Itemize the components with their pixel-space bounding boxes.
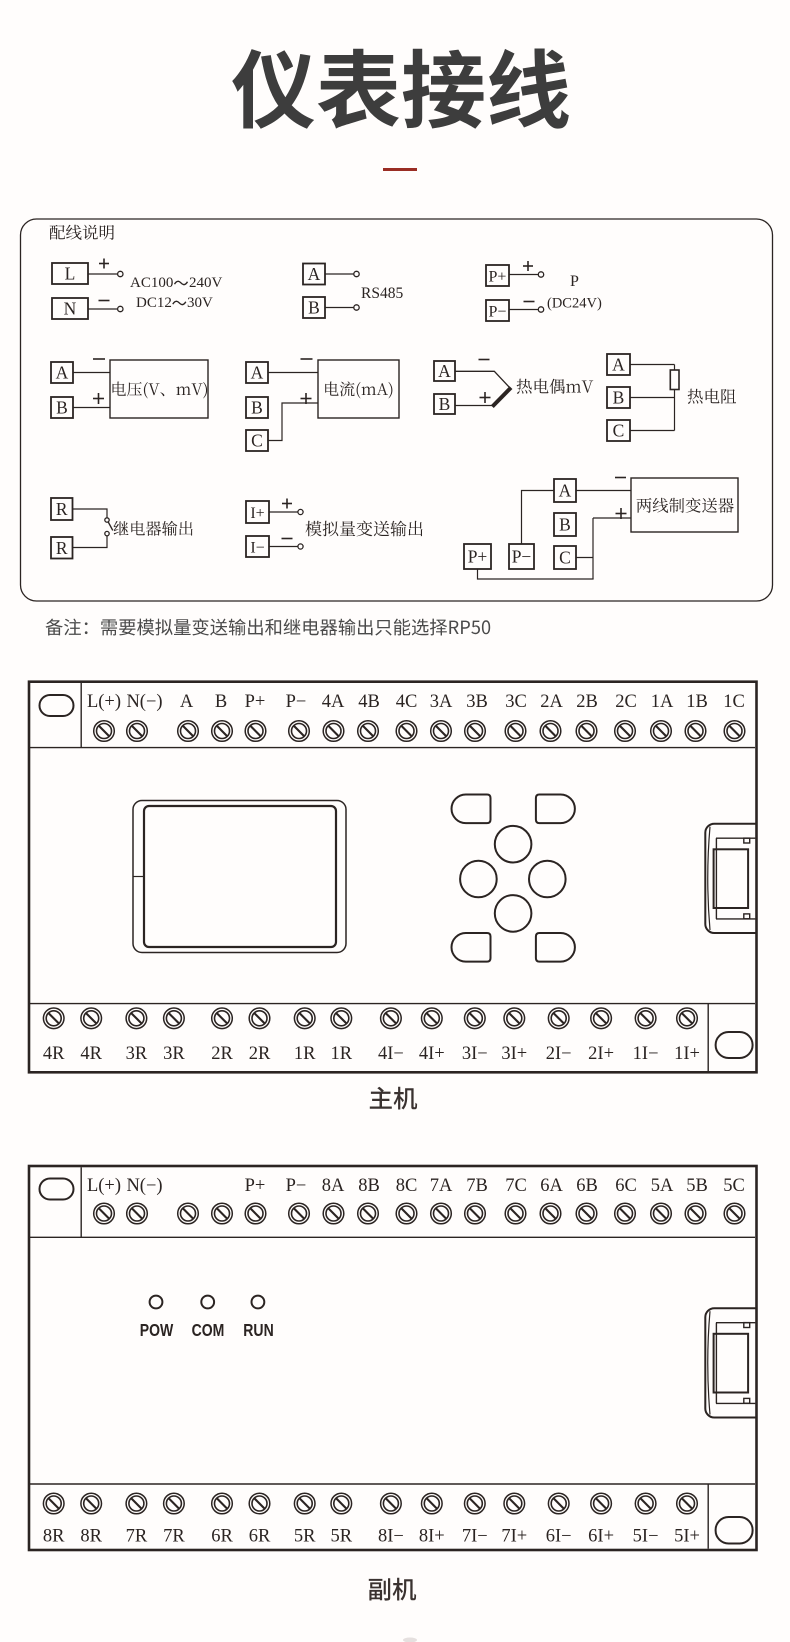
svg-text:1I−: 1I− — [633, 1044, 659, 1064]
svg-text:4R: 4R — [80, 1044, 102, 1064]
svg-text:1C: 1C — [723, 692, 745, 712]
svg-text:8A: 8A — [322, 1176, 345, 1196]
svg-text:30V: 30V — [187, 295, 213, 311]
svg-text:3I−: 3I− — [462, 1044, 488, 1064]
svg-text:P: P — [570, 273, 579, 290]
svg-text:4A: 4A — [322, 692, 345, 712]
svg-text:R: R — [56, 499, 68, 519]
svg-text:3B: 3B — [466, 692, 488, 712]
svg-text:A: A — [180, 692, 194, 712]
svg-text:6I+: 6I+ — [588, 1527, 614, 1547]
svg-text:1R: 1R — [331, 1044, 353, 1064]
svg-text:3R: 3R — [163, 1044, 185, 1064]
svg-text:A: A — [56, 363, 69, 383]
svg-text:4R: 4R — [43, 1044, 65, 1064]
svg-text:B: B — [559, 515, 571, 535]
svg-text:N: N — [64, 299, 77, 319]
svg-text:DC12: DC12 — [136, 295, 172, 311]
svg-text:5I−: 5I− — [633, 1527, 659, 1547]
svg-text:6R: 6R — [211, 1527, 233, 1547]
svg-text:1R: 1R — [294, 1044, 316, 1064]
svg-text:A: A — [559, 481, 572, 501]
svg-text:6C: 6C — [615, 1176, 637, 1196]
svg-text:P+: P+ — [245, 692, 266, 712]
svg-text:8R: 8R — [43, 1527, 65, 1547]
svg-text:2I−: 2I− — [546, 1044, 572, 1064]
svg-text:L(+): L(+) — [87, 1176, 121, 1196]
svg-text:A: A — [438, 361, 451, 381]
svg-text:P+: P+ — [468, 547, 488, 567]
svg-text:5R: 5R — [294, 1527, 316, 1547]
svg-text:2R: 2R — [249, 1044, 271, 1064]
svg-text:B: B — [251, 398, 263, 418]
svg-text:240V: 240V — [189, 275, 223, 291]
svg-text:B: B — [215, 692, 227, 712]
svg-text:RS485: RS485 — [361, 285, 403, 302]
svg-text:7A: 7A — [430, 1176, 453, 1196]
svg-text:7R: 7R — [126, 1527, 148, 1547]
svg-text:POW: POW — [140, 1320, 174, 1340]
svg-text:C: C — [251, 431, 263, 451]
svg-text:P+: P+ — [245, 1176, 266, 1196]
svg-text:6B: 6B — [576, 1176, 598, 1196]
svg-text:L: L — [65, 264, 76, 284]
svg-text:3C: 3C — [505, 692, 527, 712]
svg-text:A: A — [612, 355, 625, 375]
svg-text:RUN: RUN — [243, 1320, 273, 1340]
svg-text:5C: 5C — [723, 1176, 745, 1196]
svg-text:A: A — [251, 363, 264, 383]
svg-text:P−: P− — [489, 304, 507, 321]
svg-text:COM: COM — [192, 1320, 225, 1340]
svg-text:B: B — [439, 394, 451, 414]
svg-text:7B: 7B — [466, 1176, 488, 1196]
svg-text:4I−: 4I− — [378, 1044, 404, 1064]
svg-text:1A: 1A — [651, 692, 674, 712]
svg-text:3A: 3A — [430, 692, 453, 712]
svg-text:I+: I+ — [250, 505, 264, 522]
svg-text:8R: 8R — [80, 1527, 102, 1547]
svg-text:2C: 2C — [615, 692, 637, 712]
svg-text:7R: 7R — [163, 1527, 185, 1547]
svg-text:5A: 5A — [651, 1176, 674, 1196]
svg-text:7I+: 7I+ — [501, 1527, 527, 1547]
svg-text:B: B — [56, 398, 68, 418]
svg-text:6I−: 6I− — [546, 1527, 572, 1547]
svg-text:2I+: 2I+ — [588, 1044, 614, 1064]
svg-text:5I+: 5I+ — [674, 1527, 700, 1547]
svg-text:3I+: 3I+ — [501, 1044, 527, 1064]
svg-text:R: R — [56, 538, 68, 558]
svg-text:(DC24V): (DC24V) — [547, 296, 602, 312]
svg-text:2A: 2A — [540, 692, 563, 712]
svg-text:B: B — [308, 298, 320, 318]
svg-text:P−: P− — [512, 547, 532, 567]
svg-text:C: C — [559, 548, 571, 568]
svg-text:I−: I− — [250, 540, 264, 557]
svg-text:7I−: 7I− — [462, 1527, 488, 1547]
svg-text:2R: 2R — [211, 1044, 233, 1064]
svg-text:C: C — [613, 421, 625, 441]
svg-text:5B: 5B — [686, 1176, 708, 1196]
svg-text:P−: P− — [286, 1176, 307, 1196]
svg-text:3R: 3R — [126, 1044, 148, 1064]
svg-text:N(−): N(−) — [126, 1176, 162, 1196]
svg-text:B: B — [613, 388, 625, 408]
svg-text:8B: 8B — [358, 1176, 380, 1196]
svg-text:4B: 4B — [358, 692, 380, 712]
svg-text:1I+: 1I+ — [674, 1044, 700, 1064]
svg-text:AC100: AC100 — [130, 275, 173, 291]
svg-text:5R: 5R — [331, 1527, 353, 1547]
svg-text:8I−: 8I− — [378, 1527, 404, 1547]
svg-text:A: A — [308, 264, 321, 284]
svg-text:P+: P+ — [489, 269, 507, 286]
svg-text:N(−): N(−) — [126, 692, 162, 712]
svg-text:4I+: 4I+ — [419, 1044, 445, 1064]
svg-text:6A: 6A — [540, 1176, 563, 1196]
svg-text:L(+): L(+) — [87, 692, 121, 712]
svg-text:4C: 4C — [396, 692, 418, 712]
svg-text:2B: 2B — [576, 692, 598, 712]
svg-text:7C: 7C — [505, 1176, 527, 1196]
svg-text:6R: 6R — [249, 1527, 271, 1547]
svg-text:8I+: 8I+ — [419, 1527, 445, 1547]
svg-text:1B: 1B — [686, 692, 708, 712]
svg-text:8C: 8C — [396, 1176, 418, 1196]
svg-text:P−: P− — [286, 692, 307, 712]
